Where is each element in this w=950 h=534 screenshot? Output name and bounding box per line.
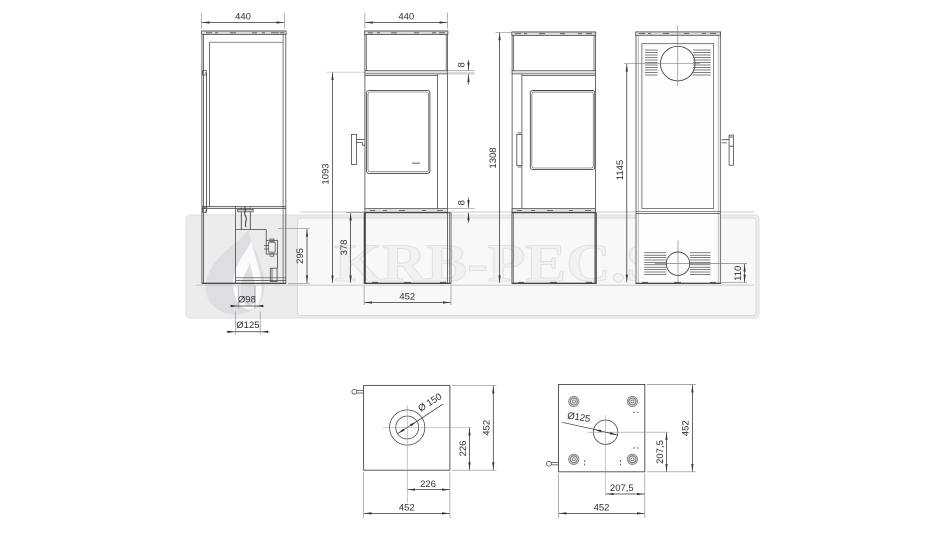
svg-text:452: 452 <box>482 420 493 436</box>
svg-text:1308: 1308 <box>488 147 499 168</box>
svg-text:452: 452 <box>399 502 415 513</box>
svg-text:207,5: 207,5 <box>655 440 666 464</box>
svg-text:Ø125: Ø125 <box>236 320 259 331</box>
svg-text:440: 440 <box>398 12 414 23</box>
svg-text:1093: 1093 <box>321 163 332 184</box>
svg-text:1145: 1145 <box>615 160 626 180</box>
svg-text:Ø98: Ø98 <box>238 295 256 306</box>
svg-text:378: 378 <box>339 240 350 256</box>
svg-text:226: 226 <box>420 479 436 490</box>
svg-text:8: 8 <box>457 200 468 205</box>
svg-text:452: 452 <box>594 502 610 513</box>
svg-text:110: 110 <box>733 266 744 281</box>
svg-text:452: 452 <box>681 420 692 436</box>
svg-text:Ø125: Ø125 <box>566 410 591 425</box>
svg-text:295: 295 <box>295 248 306 264</box>
svg-text:207,5: 207,5 <box>610 483 634 494</box>
svg-text:Ø 150: Ø 150 <box>416 391 444 414</box>
svg-text:440: 440 <box>235 12 251 23</box>
svg-text:8: 8 <box>457 62 468 67</box>
svg-text:452: 452 <box>399 292 415 303</box>
svg-text:226: 226 <box>458 441 469 457</box>
